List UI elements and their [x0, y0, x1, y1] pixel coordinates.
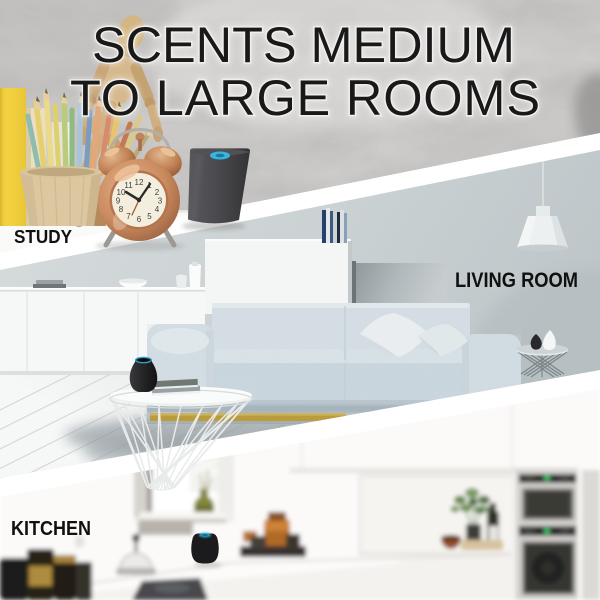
svg-text:KITCHEN: KITCHEN — [11, 517, 91, 540]
svg-text:7: 7 — [126, 212, 131, 221]
svg-text:8: 8 — [119, 205, 124, 214]
svg-text:4: 4 — [155, 205, 160, 214]
svg-text:11: 11 — [124, 181, 133, 190]
svg-text:SCENTS MEDIUM: SCENTS MEDIUM — [92, 16, 515, 73]
svg-text:STUDY: STUDY — [14, 226, 73, 247]
svg-text:5: 5 — [147, 212, 152, 221]
svg-text:6: 6 — [137, 215, 142, 224]
svg-text:LIVING ROOM: LIVING ROOM — [455, 269, 578, 292]
svg-text:9: 9 — [116, 197, 121, 206]
svg-text:12: 12 — [135, 178, 144, 187]
svg-text:TO LARGE ROOMS: TO LARGE ROOMS — [70, 69, 540, 126]
